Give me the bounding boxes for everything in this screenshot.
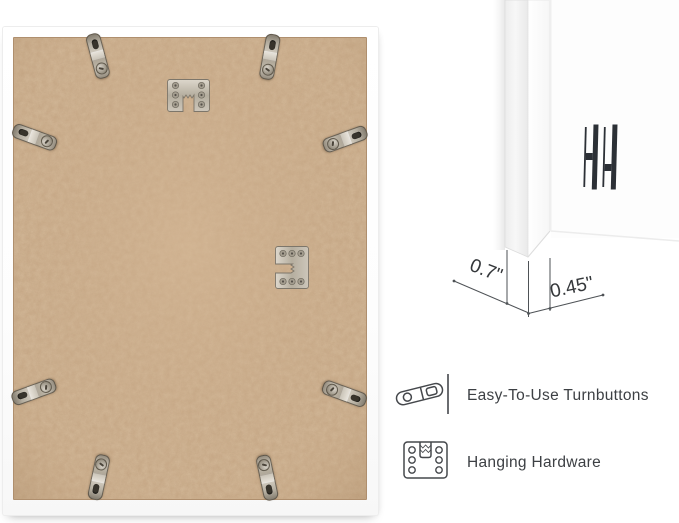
feature-label: Hanging Hardware: [467, 453, 601, 473]
frame-corner-view: 0.7" 0.45": [440, 0, 679, 330]
turnbutton-icon: [393, 371, 451, 417]
frame-side-face: [505, 0, 528, 257]
face-width-dimension-label: 0.45": [548, 273, 595, 303]
sawtooth-hanger-vertical: [167, 79, 210, 112]
hanging-hardware-icon: [403, 440, 449, 480]
feature-label: Easy-To-Use Turnbuttons: [467, 386, 649, 406]
frame-front-face: [528, 0, 550, 257]
depth-dimension-label: 0.7": [467, 255, 505, 286]
mat: [551, 0, 679, 238]
product-image: 0.7" 0.45" Easy-To-Use Turnbuttons Hangi…: [0, 0, 679, 523]
sawtooth-hanger-horizontal: [275, 246, 309, 289]
